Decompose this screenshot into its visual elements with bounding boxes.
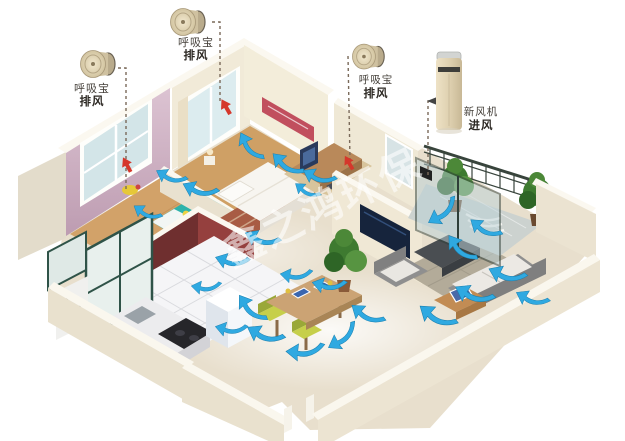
exterior-side-wall — [18, 152, 66, 260]
function-name: 排风 — [350, 87, 402, 100]
curtain — [178, 96, 188, 168]
device-label-exhaust-3: 呼吸宝 排风 — [350, 74, 402, 100]
device-label-exhaust-1: 呼吸宝 排风 — [64, 82, 120, 108]
leader-arrowhead — [427, 97, 437, 105]
exhaust-fan-unit-2 — [171, 9, 206, 36]
entry-door-jamb — [306, 394, 314, 422]
lamp — [207, 149, 213, 155]
exhaust-fan-unit-3 — [352, 44, 384, 69]
nightstand — [204, 156, 215, 165]
entry-door-jamb — [284, 405, 292, 433]
ventilation-diagram: 呼吸宝 排风 呼吸宝 排风 呼吸宝 排风 新风机 进风 鑫之鸿环保 — [0, 0, 625, 441]
device-label-fresh-air: 新风机 进风 — [455, 106, 507, 132]
function-name: 排风 — [168, 49, 224, 62]
function-name: 进风 — [455, 119, 507, 132]
function-name: 排风 — [64, 95, 120, 108]
device-label-exhaust-2: 呼吸宝 排风 — [168, 36, 224, 62]
exhaust-fan-unit-1 — [81, 51, 116, 78]
